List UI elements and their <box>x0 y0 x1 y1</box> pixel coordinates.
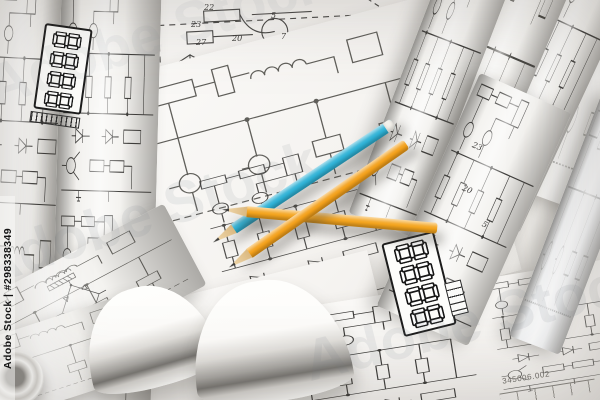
stock-watermark-text: Adobe Stock | #298338349 <box>2 228 14 369</box>
schematic-callout-number: 5 <box>271 12 276 20</box>
stock-photo-blueprints-and-pencils: L3 HB100M 345006.002 23 20 5 <box>0 0 600 400</box>
schematic-callout-number: 27 <box>196 39 206 47</box>
schematic-callout-number: 20 <box>232 35 242 43</box>
schematic-callout-number: 22 <box>204 4 214 12</box>
schematic-callout-number: 7 <box>281 33 286 41</box>
stock-watermark: Adobe Stock | #298338349 <box>0 196 15 400</box>
pencil-tip <box>222 204 250 217</box>
schematic-callout-number: 23 <box>191 21 201 29</box>
